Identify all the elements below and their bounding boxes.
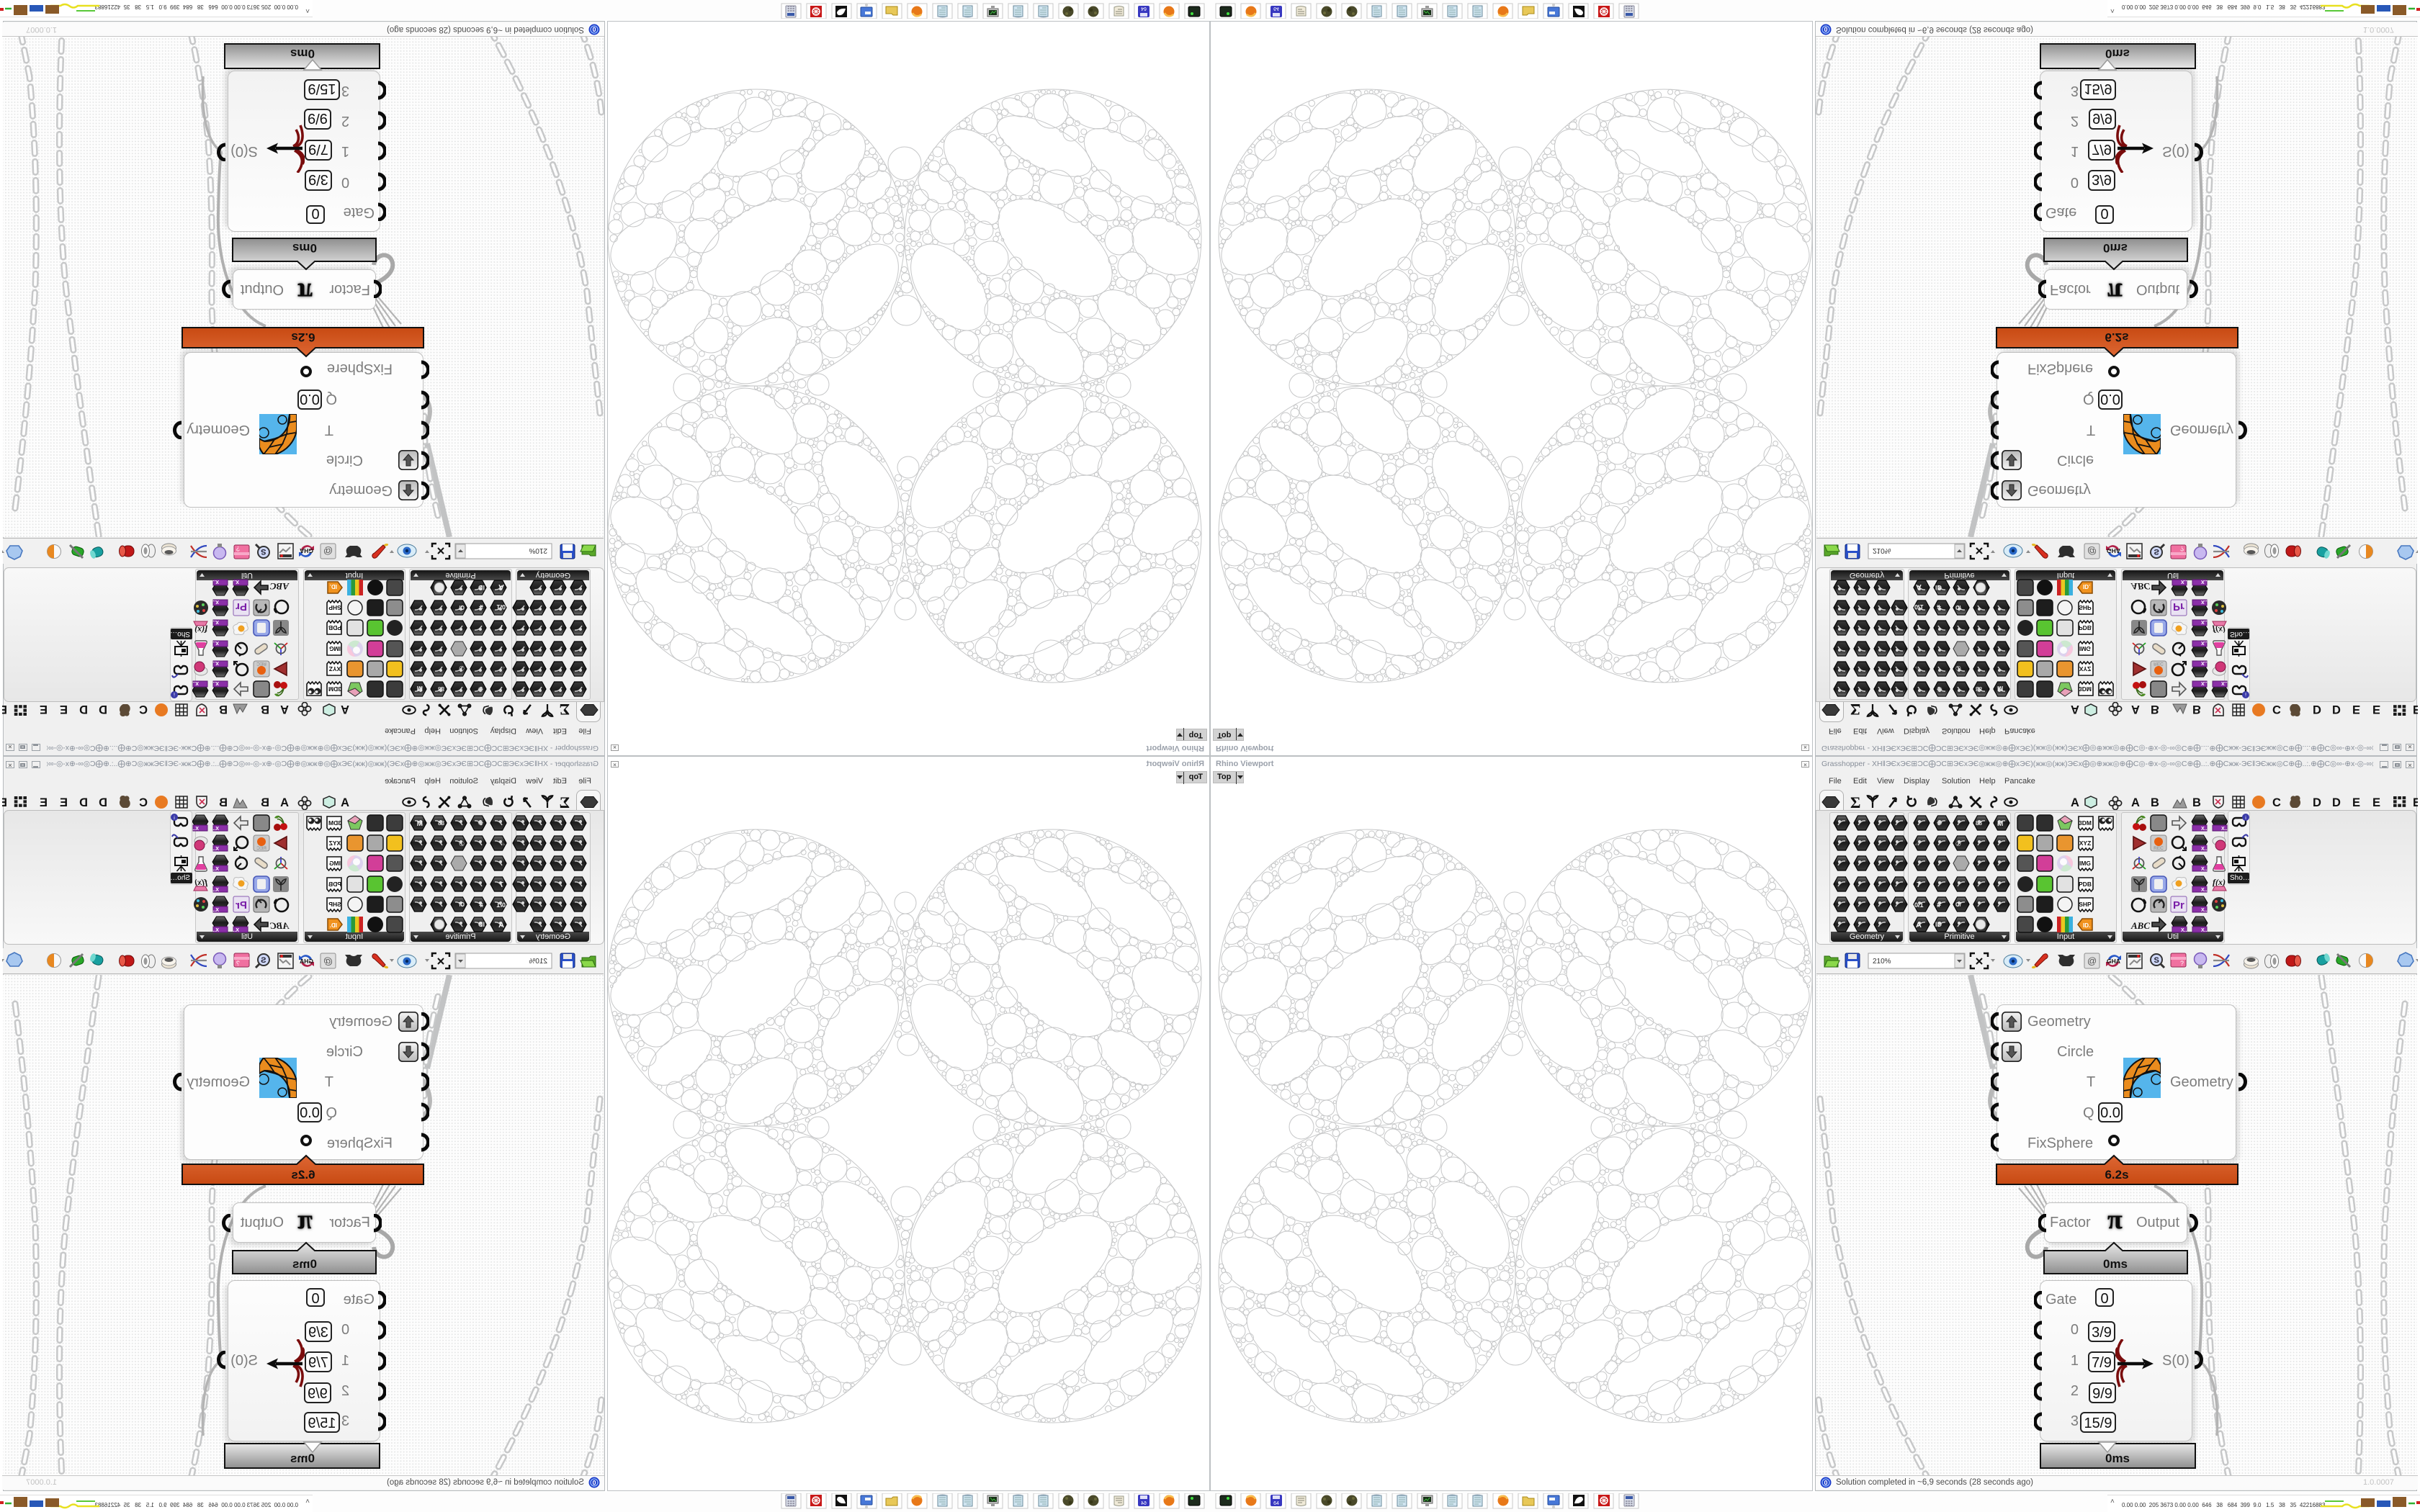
svg-text:E: E [40, 703, 48, 716]
svg-text:E: E [60, 703, 68, 716]
svg-text:X..: X.. [212, 867, 219, 872]
svg-text:0: 0 [1824, 26, 1827, 33]
svg-text:X..: X.. [212, 888, 219, 893]
svg-text:REC: REC [2154, 661, 2164, 666]
svg-text:REC: REC [256, 846, 266, 851]
svg-text:D: D [99, 703, 107, 716]
svg-text:REC: REC [256, 661, 266, 666]
svg-text:A: A [280, 703, 289, 716]
svg-text:A: A [2131, 703, 2140, 716]
svg-text:X..: X.. [233, 579, 239, 584]
svg-text:6.2s: 6.2s [291, 1168, 315, 1182]
svg-text:X..: X.. [192, 680, 199, 685]
svg-text:C: C [139, 796, 148, 809]
svg-text:X..: X.. [212, 619, 219, 624]
svg-text:X..: X.. [2201, 680, 2208, 685]
svg-text:210%: 210% [529, 546, 547, 554]
svg-text:A: A [341, 703, 349, 716]
svg-text:Σ: Σ [1850, 701, 1860, 719]
svg-text:i: i [174, 816, 175, 821]
svg-text:0ms: 0ms [2103, 241, 2128, 255]
svg-text:X..: X.. [212, 579, 219, 584]
svg-text:f(x): f(x) [194, 625, 207, 635]
svg-text:6.2s: 6.2s [291, 330, 315, 344]
svg-text:GHA: GHA [300, 958, 313, 965]
svg-text:B: B [219, 796, 228, 809]
svg-text:Σ: Σ [560, 701, 570, 719]
svg-text:E: E [60, 796, 68, 809]
svg-text:Pr: Pr [236, 600, 247, 613]
svg-text:E: E [2413, 703, 2418, 716]
svg-text:ABC: ABC [270, 920, 290, 931]
svg-text:E: E [2, 796, 7, 809]
svg-text:A: A [341, 796, 349, 809]
svg-text:@: @ [323, 546, 333, 557]
svg-text:0: 0 [592, 26, 596, 33]
svg-text:D: D [2313, 703, 2321, 716]
svg-text:0ms: 0ms [2105, 47, 2130, 60]
svg-text:X..: X.. [192, 827, 199, 832]
svg-text:X..: X.. [2181, 579, 2187, 584]
svg-text:S: S [2154, 547, 2159, 556]
svg-text:64: 64 [1141, 1501, 1147, 1506]
svg-text:D: D [79, 703, 88, 716]
svg-text:210%: 210% [1873, 546, 1891, 554]
svg-text:S: S [261, 547, 266, 556]
svg-text:X..: X.. [2201, 660, 2208, 665]
svg-text:0ms: 0ms [290, 1452, 315, 1465]
svg-text:D: D [99, 796, 107, 809]
svg-text:210%: 210% [529, 958, 547, 966]
svg-text:D: D [2332, 703, 2341, 716]
svg-text:B: B [261, 703, 269, 716]
svg-text:C: C [139, 703, 148, 716]
svg-text:i: i [174, 691, 175, 696]
svg-text:@: @ [323, 955, 333, 966]
svg-text:0ms: 0ms [290, 47, 315, 60]
svg-text:X..: X.. [2201, 599, 2208, 604]
svg-text:X..: X.. [2201, 640, 2208, 645]
svg-text:GHA: GHA [300, 547, 313, 554]
svg-text:Σ: Σ [560, 793, 570, 811]
svg-text:X..: X.. [212, 660, 219, 665]
svg-text:X..: X.. [212, 640, 219, 645]
svg-text:?: ? [2180, 545, 2184, 552]
svg-text:X..: X.. [212, 847, 219, 852]
svg-text:f(x): f(x) [2213, 625, 2226, 635]
svg-text:B: B [219, 703, 228, 716]
svg-text:Pr: Pr [236, 899, 247, 912]
svg-text:0: 0 [592, 1480, 596, 1487]
svg-text:Pr: Pr [2173, 600, 2184, 613]
svg-text:64: 64 [1141, 6, 1147, 11]
svg-text:X..: X.. [212, 680, 219, 685]
svg-text:A: A [2071, 703, 2079, 716]
svg-text:E: E [2, 703, 7, 716]
svg-text:D: D [79, 796, 88, 809]
svg-text:B: B [261, 796, 269, 809]
svg-text:S: S [261, 956, 266, 965]
svg-text:A: A [280, 796, 289, 809]
svg-text:C: C [2272, 703, 2281, 716]
svg-text:B: B [2151, 703, 2159, 716]
svg-text:X..: X.. [2221, 680, 2228, 685]
svg-text:X..: X.. [212, 599, 219, 604]
svg-text:E: E [2372, 703, 2380, 716]
svg-text:X..: X.. [2201, 579, 2208, 584]
svg-text:X..: X.. [212, 928, 219, 933]
svg-text:GHA: GHA [2107, 547, 2120, 554]
svg-text:X..: X.. [2201, 619, 2208, 624]
svg-text:0ms: 0ms [292, 1257, 317, 1271]
svg-text:X..: X.. [233, 928, 239, 933]
svg-text:6.2s: 6.2s [2105, 330, 2128, 344]
svg-text:B: B [2192, 703, 2201, 716]
svg-text:ABC: ABC [2130, 581, 2150, 592]
svg-text:0ms: 0ms [292, 241, 317, 255]
svg-text:64: 64 [1273, 6, 1279, 11]
svg-text:?: ? [236, 960, 240, 967]
svg-text:@: @ [2087, 546, 2097, 557]
svg-text:f(x): f(x) [194, 877, 207, 887]
svg-text:ABC: ABC [270, 581, 290, 592]
svg-text:?: ? [236, 545, 240, 552]
svg-text:X..: X.. [212, 908, 219, 913]
svg-text:E: E [40, 796, 48, 809]
svg-text:X..: X.. [212, 827, 219, 832]
svg-text:E: E [2352, 703, 2360, 716]
